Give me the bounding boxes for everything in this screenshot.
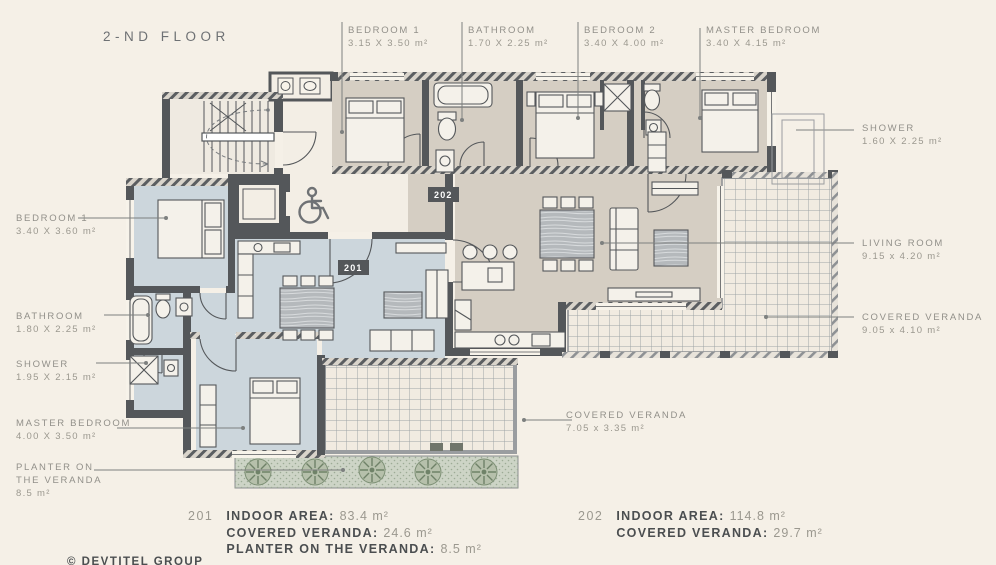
stat-label: COVERED VERANDA: — [616, 526, 768, 540]
stats-unit-201: 201 INDOOR AREA:83.4 m² COVERED VERANDA:… — [188, 508, 482, 558]
label-201-planter: PLANTER ON THE VERANDA 8.5 m² — [16, 461, 116, 500]
label-202-master-bedroom: MASTER BEDROOM 3.40 X 4.15 m² — [706, 24, 821, 50]
unit-number: 202 — [578, 508, 603, 525]
room-name: PLANTER ON THE VERANDA — [16, 461, 116, 487]
room-dims: 7.05 x 3.35 m² — [566, 422, 687, 435]
unit-badge-202: 202 — [428, 187, 459, 202]
label-202-bathroom: BATHROOM 1.70 X 2.25 m² — [468, 24, 549, 50]
copyright-text: © DEVTITEL GROUP — [67, 556, 203, 565]
stat-label: COVERED VERANDA: — [226, 526, 378, 540]
room-name: COVERED VERANDA — [566, 409, 687, 422]
elevator — [228, 174, 290, 234]
room-dims: 3.40 X 3.60 m² — [16, 225, 97, 238]
room-dims: 1.70 X 2.25 m² — [468, 37, 549, 50]
room-name: BATHROOM — [468, 24, 549, 37]
room-name: BEDROOM 2 — [584, 24, 665, 37]
room-dims: 8.5 m² — [16, 487, 116, 500]
stat-value: 29.7 m² — [773, 526, 822, 540]
label-201-master-bedroom: MASTER BEDROOM 4.00 X 3.50 m² — [16, 417, 131, 443]
label-201-shower: SHOWER 1.95 X 2.15 m² — [16, 358, 97, 384]
stat-value: 8.5 m² — [440, 542, 481, 556]
floor-plan-drawing — [0, 0, 996, 565]
room-name: MASTER BEDROOM — [16, 417, 131, 430]
page-title: 2-ND FLOOR — [103, 29, 230, 44]
stat-line: COVERED VERANDA:29.7 m² — [616, 525, 822, 542]
stat-label: INDOOR AREA: — [226, 509, 334, 523]
stat-label: PLANTER ON THE VERANDA: — [226, 542, 435, 556]
stat-label: INDOOR AREA: — [616, 509, 724, 523]
room-dims: 3.15 X 3.50 m² — [348, 37, 429, 50]
room-name: MASTER BEDROOM — [706, 24, 821, 37]
room-name: COVERED VERANDA — [862, 311, 983, 324]
covered-veranda-201 — [325, 365, 515, 453]
room-dims: 1.95 X 2.15 m² — [16, 371, 97, 384]
label-202-bedroom-1: BEDROOM 1 3.15 X 3.50 m² — [348, 24, 429, 50]
planter-on-veranda — [235, 456, 518, 488]
stat-line: INDOOR AREA:83.4 m² — [226, 508, 482, 525]
stat-value: 114.8 m² — [730, 509, 786, 523]
stat-lines: INDOOR AREA:114.8 m² COVERED VERANDA:29.… — [616, 508, 822, 541]
room-name: BATHROOM — [16, 310, 97, 323]
room-dims: 1.60 X 2.25 m² — [862, 135, 943, 148]
stat-line: COVERED VERANDA:24.6 m² — [226, 525, 482, 542]
stat-line: PLANTER ON THE VERANDA:8.5 m² — [226, 541, 482, 558]
stat-value: 24.6 m² — [383, 526, 432, 540]
label-201-bedroom-1: BEDROOM 1 3.40 X 3.60 m² — [16, 212, 97, 238]
room-dims: 9.05 x 4.10 m² — [862, 324, 983, 337]
floor-plan-page: 2-ND FLOOR 201 202 BEDROOM 1 3.15 X 3.50… — [0, 0, 996, 565]
stats-unit-202: 202 INDOOR AREA:114.8 m² COVERED VERANDA… — [578, 508, 823, 541]
room-dims: 3.40 X 4.15 m² — [706, 37, 821, 50]
label-202-bedroom-2: BEDROOM 2 3.40 X 4.00 m² — [584, 24, 665, 50]
room-dims: 4.00 X 3.50 m² — [16, 430, 131, 443]
label-201-bathroom: BATHROOM 1.80 X 2.25 m² — [16, 310, 97, 336]
room-name: LIVING ROOM — [862, 237, 944, 250]
label-202-shower: SHOWER 1.60 X 2.25 m² — [862, 122, 943, 148]
label-202-living-room: LIVING ROOM 9.15 x 4.20 m² — [862, 237, 944, 263]
room-dims: 1.80 X 2.25 m² — [16, 323, 97, 336]
room-name: SHOWER — [862, 122, 943, 135]
room-dims: 9.15 x 4.20 m² — [862, 250, 944, 263]
stat-line: INDOOR AREA:114.8 m² — [616, 508, 822, 525]
room-name: SHOWER — [16, 358, 97, 371]
unit-number: 201 — [188, 508, 213, 525]
stat-lines: INDOOR AREA:83.4 m² COVERED VERANDA:24.6… — [226, 508, 482, 558]
room-name: BEDROOM 1 — [348, 24, 429, 37]
unit-badge-201: 201 — [338, 260, 369, 275]
room-name: BEDROOM 1 — [16, 212, 97, 225]
room-dims: 3.40 X 4.00 m² — [584, 37, 665, 50]
stat-value: 83.4 m² — [340, 509, 389, 523]
label-202-covered-veranda: COVERED VERANDA 9.05 x 4.10 m² — [862, 311, 983, 337]
label-201-covered-veranda: COVERED VERANDA 7.05 x 3.35 m² — [566, 409, 687, 435]
